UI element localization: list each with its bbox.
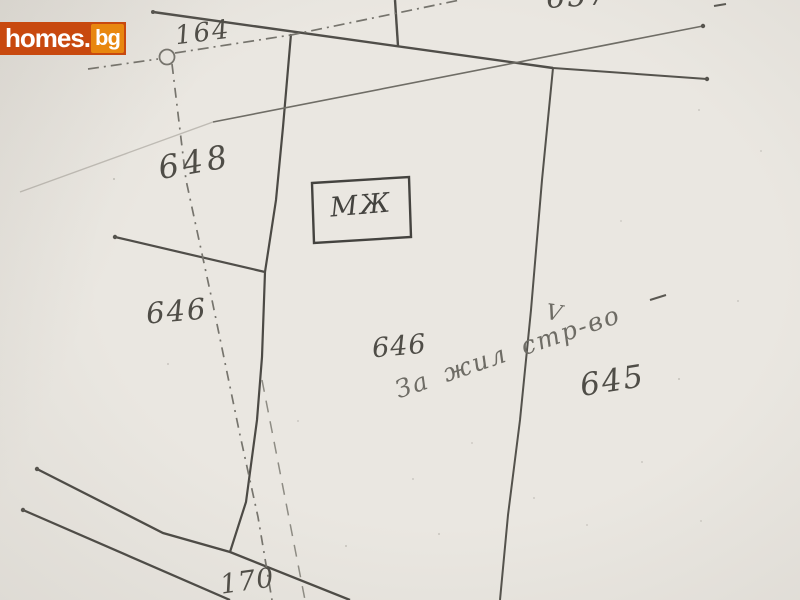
line-endpoint <box>21 508 25 512</box>
parcel-label-646: 646 <box>371 331 428 363</box>
road-label-170: 170 <box>218 564 276 598</box>
boundary-line-west <box>230 34 291 552</box>
line-endpoint <box>151 10 155 14</box>
pen-dash-mark <box>650 295 666 300</box>
pen-dash-mark-top <box>714 4 726 6</box>
building-label: МЖ <box>329 189 393 221</box>
line-endpoint <box>701 24 705 28</box>
cadastral-sketch: 164 657 648 646 646 645 170 МЖ За жил ст… <box>0 0 800 600</box>
line-endpoint <box>113 235 117 239</box>
road-edge-upper <box>37 469 350 600</box>
parcel-label-164: 164 <box>174 17 232 50</box>
boundary-lines-layer <box>0 0 800 600</box>
paper-noise <box>0 0 2 2</box>
checkmark-v: V <box>545 302 564 326</box>
watermark-brand-text: homes. <box>5 23 90 54</box>
line-endpoint <box>35 467 39 471</box>
boundary-line-northeast <box>553 68 707 79</box>
boundary-line-top-stub <box>395 0 398 46</box>
dash-dot-line-left <box>88 59 158 69</box>
parcel-label-657: 657 <box>545 0 610 14</box>
road-edge-lower <box>23 510 230 600</box>
watermark-tld-text: bg <box>91 24 124 53</box>
homes-bg-watermark: homes. bg <box>0 22 126 55</box>
boundary-line-west-parcel <box>115 237 265 272</box>
parcel-label-646-west: 646 <box>145 294 209 328</box>
line-endpoint <box>705 77 709 81</box>
survey-point-circle <box>160 50 175 65</box>
